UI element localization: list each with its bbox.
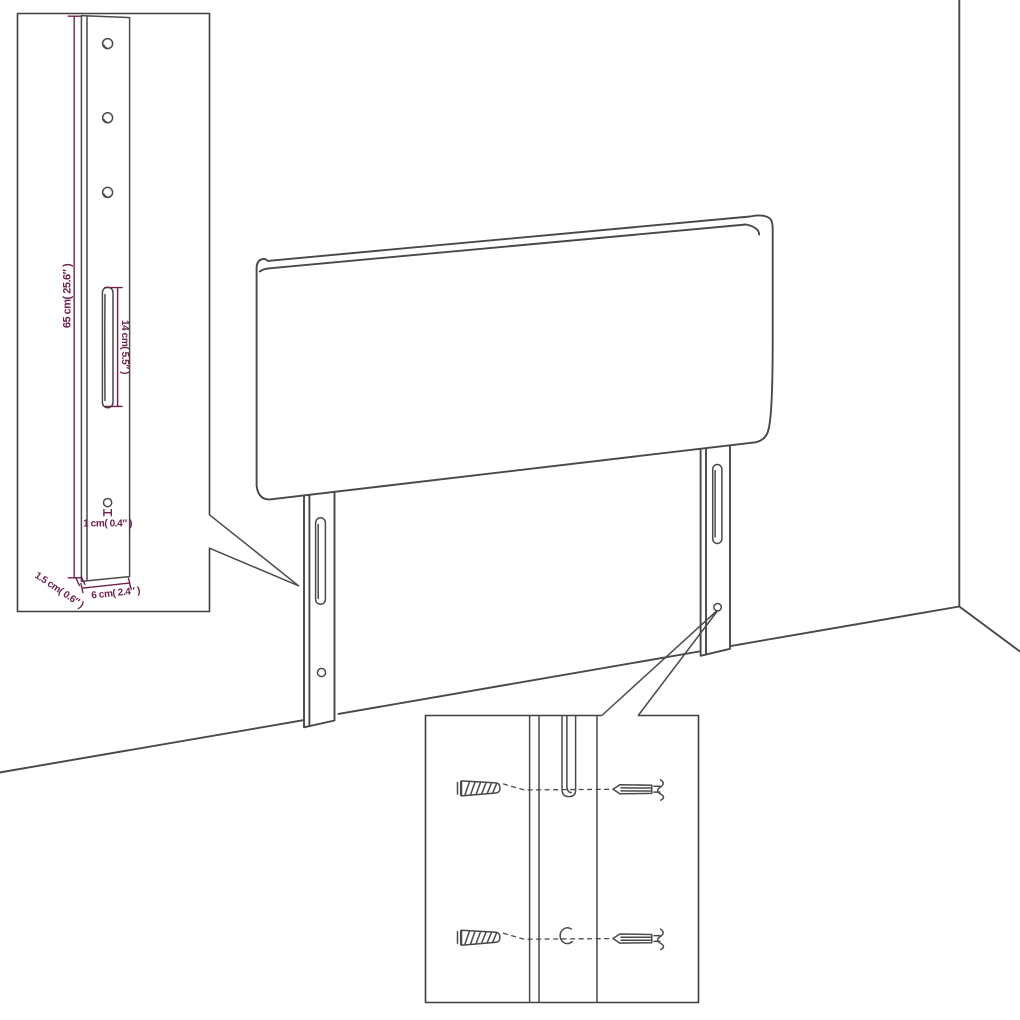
left-leg (304, 491, 335, 728)
callout-lines-right (602, 611, 717, 715)
detail-inset-leg: 65 cm( 25.6″ ) 14 cm( 5.5″ ) 1 cm( 0.4″ … (18, 14, 210, 612)
slot-dimension-label: 14 cm( 5.5″ ) (119, 320, 130, 374)
thickness-dimension-label: 1.5 cm( 0.6″ ) (32, 570, 85, 611)
post-slot (102, 287, 113, 408)
hole-dimension-label: 1 cm( 0.4″ ) (83, 519, 132, 530)
callout-wedge-right (602, 611, 717, 715)
callout-wedge-left (210, 515, 299, 586)
callout-lines-left (210, 515, 299, 586)
hole-dimension-bracket (104, 510, 111, 516)
floor-line-right (959, 607, 1020, 652)
right-leg (701, 445, 730, 656)
headboard-panel (257, 215, 773, 499)
width-dimension-label: 6 cm( 2.4″ ) (91, 585, 141, 601)
height-dimension-label: 65 cm( 25.6″ ) (62, 263, 74, 328)
detail-inset-mounting (426, 716, 699, 1003)
diagram-canvas: 65 cm( 25.6″ ) 14 cm( 5.5″ ) 1 cm( 0.4″ … (0, 0, 1020, 1020)
post-small-hole (104, 499, 112, 507)
headboard-outline (257, 215, 773, 499)
assembly-diagram: 65 cm( 25.6″ ) 14 cm( 5.5″ ) 1 cm( 0.4″ … (0, 0, 1020, 1020)
inset-leg-drawing (81, 16, 129, 582)
post-hole-crescents (104, 45, 107, 197)
